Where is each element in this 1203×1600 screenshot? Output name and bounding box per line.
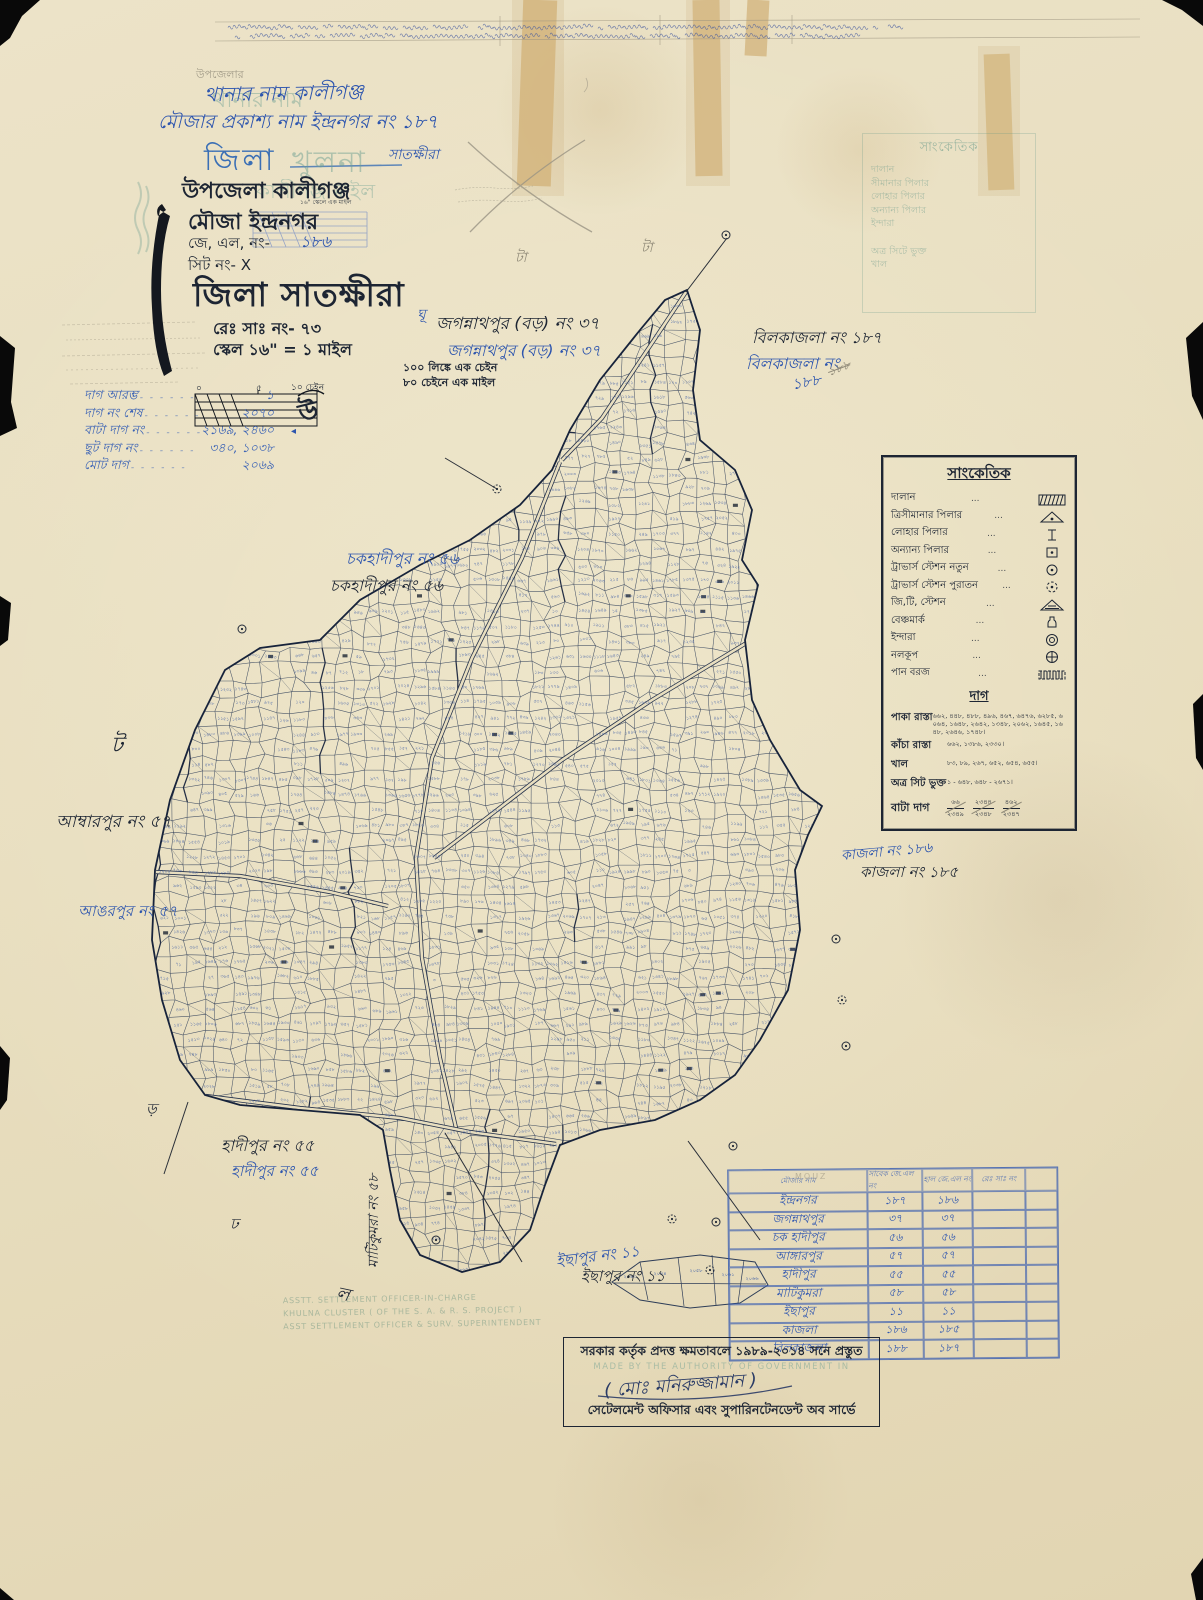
svg-text:১৩৬৯: ১৩৬৯ xyxy=(712,684,725,691)
svg-text:২০৬: ২০৬ xyxy=(775,868,785,874)
svg-text:৪৮৮: ৪৮৮ xyxy=(327,930,338,936)
svg-text:৩৪৫: ৩৪৫ xyxy=(625,699,635,705)
legend-item: দালান... xyxy=(891,490,1067,508)
svg-text:১১৭৮: ১১৭৮ xyxy=(502,562,515,568)
mouza-table-number-cell: ১১ xyxy=(923,1302,973,1321)
svg-text:৯৬৪: ৯৬৪ xyxy=(311,1100,321,1106)
map-annotation: চকহাদীপুর নং ৫৬ xyxy=(330,573,443,600)
scale-note-line2: ৮০ চেইনে এক মাইল xyxy=(403,375,497,390)
svg-text:১১৩০: ১১৩০ xyxy=(292,1038,305,1045)
svg-text:১৯০২: ১৯০২ xyxy=(456,1081,468,1087)
svg-text:১১৯৫: ১১৯৫ xyxy=(518,809,530,815)
map-annotation: চকহাদীপুর নং ৫৬ xyxy=(346,546,459,573)
svg-text:৯৯৮: ৯৯৮ xyxy=(700,764,711,770)
svg-text:১৩৬: ১৩৬ xyxy=(219,930,229,935)
svg-text:৫২৯: ৫২৯ xyxy=(235,794,244,799)
svg-text:৩৭৭: ৩৭৭ xyxy=(670,532,679,537)
svg-text:১৭৫৭: ১৭৫৭ xyxy=(701,516,713,522)
svg-text:৯৪১: ৯৪১ xyxy=(490,716,499,722)
svg-text:১৫৯৮: ১৫৯৮ xyxy=(636,595,649,601)
mouza-table-number-cell xyxy=(1026,1228,1058,1247)
svg-text:১৫: ১৫ xyxy=(612,609,619,615)
svg-text:১১২২: ১১২২ xyxy=(654,1053,666,1058)
svg-text:১৭৫৪: ১৭৫৪ xyxy=(290,793,302,799)
svg-text:১৯৯০: ১৯৯০ xyxy=(546,517,558,523)
svg-text:১৮৩: ১৮৩ xyxy=(534,670,545,676)
svg-text:১৩০০: ১৩০০ xyxy=(670,304,682,309)
svg-text:১৭৩৩: ১৭৩৩ xyxy=(713,975,726,980)
svg-text:১৯২৭: ১৯২৭ xyxy=(669,608,681,613)
svg-text:১৩০৪: ১৩০৪ xyxy=(443,700,455,706)
svg-text:১৭৬৪: ১৭৬৪ xyxy=(624,471,636,477)
svg-text:২১৫: ২১৫ xyxy=(610,578,619,583)
svg-text:১৩০৭: ১৩০৭ xyxy=(234,778,246,784)
svg-text:২২৩: ২২৩ xyxy=(310,807,320,813)
map-annotation: বিলকাজলা নং ১৮৭ xyxy=(752,325,882,352)
svg-text:১৭৫৩: ১৭৫৩ xyxy=(382,962,395,968)
svg-text:১৩৮৩: ১৩৮৩ xyxy=(355,961,368,967)
svg-text:২৫: ২৫ xyxy=(279,838,285,843)
svg-text:১৬২৯: ১৬২৯ xyxy=(610,1021,622,1027)
svg-text:১৬৮৭: ১৬৮৭ xyxy=(653,1102,665,1108)
legend-item: ইন্দারা... xyxy=(891,630,1067,648)
svg-text:৯২৮: ৯২৮ xyxy=(685,485,695,490)
svg-text:১৯৯২: ১৯৯২ xyxy=(428,609,440,615)
svg-text:৪৬৯: ৪৬৯ xyxy=(397,947,407,953)
svg-text:৯৮৪: ৯৮৪ xyxy=(671,1022,680,1027)
svg-text:১১০৭: ১১০৭ xyxy=(682,380,694,385)
svg-text:৫৩৩: ৫৩৩ xyxy=(578,565,589,571)
svg-text:১৪২৬: ১৪২৬ xyxy=(173,930,186,935)
svg-text:৯৩৫: ৯৩৫ xyxy=(490,945,500,951)
svg-text:৮৮২: ৮৮২ xyxy=(354,900,363,905)
svg-text:১৬২২: ১৬২২ xyxy=(264,900,276,905)
svg-text:১৫৯১: ১৫৯১ xyxy=(235,991,248,998)
svg-text:১০৩৭: ১০৩৭ xyxy=(428,1206,441,1213)
svg-text:১৯০৪: ১৯০৪ xyxy=(637,929,649,935)
svg-text:১১৪৭: ১১৪৭ xyxy=(263,716,275,722)
svg-text:১৩৩৮: ১৩৩৮ xyxy=(445,868,458,874)
svg-text:৭০৩: ৭০৩ xyxy=(264,883,275,890)
svg-text:১৬৪৯: ১৬৪৯ xyxy=(595,608,607,614)
svg-text:৮২০: ৮২০ xyxy=(607,837,617,843)
svg-text:১৫১৩: ১৫১৩ xyxy=(187,1037,201,1044)
mouza-table-header: রেঃ সাঃ নং xyxy=(972,1168,1025,1191)
svg-text:৩৯৪: ৩৯৪ xyxy=(475,854,484,860)
svg-text:১৪৮৭: ১৪৮৭ xyxy=(354,989,366,995)
svg-text:৮৫৩: ৮৫৩ xyxy=(473,1174,484,1180)
svg-text:৭০৬: ৭০৬ xyxy=(746,882,757,888)
svg-text:৩৯৮: ৩৯৮ xyxy=(472,793,483,799)
svg-text:১৭০১: ১৭০১ xyxy=(233,855,245,861)
mouza-table-number-cell xyxy=(973,1283,1026,1302)
svg-text:১৬৩৮: ১৬৩৮ xyxy=(622,488,635,493)
svg-text:১৬৭৪: ১৬৭৪ xyxy=(698,595,710,600)
svg-text:১১৫০: ১১৫০ xyxy=(608,532,620,538)
svg-text:১৭৮৫: ১৭৮৫ xyxy=(666,578,678,584)
svg-text:৭৬৯: ৭৬৯ xyxy=(491,1037,500,1042)
legend-symbol-double-circ-icon xyxy=(1035,629,1067,648)
svg-text:৭৮১: ৭৮১ xyxy=(446,638,455,644)
svg-text:৯৯১: ৯৯১ xyxy=(626,945,635,950)
svg-text:৯৭৮: ৯৭৮ xyxy=(537,532,547,538)
svg-text:৫১৯: ৫১৯ xyxy=(669,517,678,522)
svg-text:১৩৬১: ১৩৬১ xyxy=(549,715,562,722)
svg-text:১১৯৫: ১১৯৫ xyxy=(653,1085,665,1091)
svg-text:১৫০৮: ১৫০৮ xyxy=(279,947,292,953)
svg-text:৪৮১: ৪৮১ xyxy=(371,823,380,829)
svg-text:২৩৭: ২৩৭ xyxy=(520,609,529,614)
svg-text:৫৯৮: ৫৯৮ xyxy=(384,1100,394,1106)
svg-text:১১৬৫: ১১৬৫ xyxy=(262,1068,275,1075)
svg-text:১৯১১: ১৯১১ xyxy=(593,623,606,630)
svg-text:১৩৮৪: ১৩৮৪ xyxy=(488,885,500,891)
svg-text:৬৭২: ৬৭২ xyxy=(610,824,619,829)
svg-text:৪৩৭: ৪৩৭ xyxy=(596,992,605,998)
map-annotation: টা xyxy=(515,246,527,270)
svg-text:১৪০৪: ১৪০৪ xyxy=(428,808,440,814)
svg-text:৪৬০: ৪৬০ xyxy=(176,1008,185,1014)
svg-text:১০১৩: ১০১৩ xyxy=(564,1130,577,1136)
svg-text:৩৫৬: ৩৫৬ xyxy=(356,688,366,693)
svg-text:১১০৪: ১১০৪ xyxy=(445,808,457,814)
map-annotation: জগন্নাথপুর (বড়) নং ৩৭ xyxy=(436,311,600,339)
svg-text:১৫৩৫: ১৫৩৫ xyxy=(323,1099,335,1104)
svg-text:১৭০০: ১৭০০ xyxy=(654,854,666,860)
svg-text:১৬১৮: ১৬১৮ xyxy=(653,395,666,400)
bata-fraction: ২৩৪৪২৩৪৮ xyxy=(973,797,994,820)
svg-text:৭৪৪: ৭৪৪ xyxy=(637,1101,647,1107)
svg-text:৭৫৬: ৭৫৬ xyxy=(399,640,409,645)
svg-text:১৬৯০: ১৬৯০ xyxy=(308,1067,320,1073)
svg-text:৭৫৮: ৭৫৮ xyxy=(609,487,619,492)
svg-text:৪৯৩: ৪৯৩ xyxy=(563,516,573,522)
svg-text:৭১: ৭১ xyxy=(671,748,677,753)
svg-text:১৪১৩: ১৪১৩ xyxy=(486,609,500,616)
svg-text:১৭৪৪: ১৭৪৪ xyxy=(548,624,560,629)
svg-text:১০৯৭: ১০৯৭ xyxy=(309,1021,322,1028)
svg-text:১২০৪: ১২০৪ xyxy=(577,548,589,553)
svg-text:৮৯৭: ৮৯৭ xyxy=(686,548,695,553)
svg-text:৫৯: ৫৯ xyxy=(356,655,362,661)
svg-text:৮০১: ৮০১ xyxy=(357,930,367,936)
svg-text:২০২৬: ২০২৬ xyxy=(729,945,742,951)
svg-text:১৫৬৭: ১৫৬৭ xyxy=(653,547,665,552)
svg-text:১৯৬১: ১৯৬১ xyxy=(386,1010,398,1016)
svg-text:১৪৪: ১৪৪ xyxy=(520,1189,530,1195)
svg-text:২৫৭: ২৫৭ xyxy=(295,808,304,814)
svg-text:১২৮৮: ১২৮৮ xyxy=(685,700,698,706)
svg-text:১৭৫১: ১৭৫১ xyxy=(279,809,292,816)
legend-symbol-circ-dash-dot-icon xyxy=(1035,577,1067,596)
mouza-table-number-cell xyxy=(1026,1246,1058,1265)
svg-text:১০৬৯: ১০৬৯ xyxy=(532,947,544,953)
svg-text:১৫৪৩: ১৫৪৩ xyxy=(277,748,290,754)
svg-text:২০০১: ২০০১ xyxy=(367,1038,379,1044)
svg-text:১৭২৫: ১৭২৫ xyxy=(710,700,723,707)
svg-text:২৯৮: ২৯৮ xyxy=(491,639,502,645)
legend-item: নলকূপ... xyxy=(891,648,1067,666)
svg-text:২০৫২: ২০৫২ xyxy=(716,516,728,521)
svg-text:১৪৭৪: ১৪৭৪ xyxy=(338,792,350,798)
svg-text:১৭৫৩: ১৭৫৩ xyxy=(472,991,485,996)
svg-text:১১০: ১১০ xyxy=(596,868,605,874)
svg-text:১২৩৬: ১২৩৬ xyxy=(729,930,742,936)
mouza-table-number-cell: ৫৫ xyxy=(868,1266,923,1285)
svg-text:১৪৩৭: ১৪৩৭ xyxy=(549,1114,561,1120)
svg-text:১৭০৭: ১৭০৭ xyxy=(579,916,591,922)
svg-text:১৮৪৩: ১৮৪৩ xyxy=(668,473,681,479)
svg-text:২০১৮: ২০১৮ xyxy=(743,731,756,737)
svg-text:১৮৫৯: ১৮৫৯ xyxy=(248,1021,261,1028)
svg-text:১১৮০: ১১৮০ xyxy=(293,718,305,724)
svg-text:৩৫০: ৩৫০ xyxy=(461,885,470,890)
svg-text:৭৬৪: ৭৬৪ xyxy=(431,869,440,874)
svg-text:২০৪২: ২০৪২ xyxy=(473,1237,485,1242)
svg-text:৪১৯: ৪১৯ xyxy=(580,839,589,845)
svg-text:৩৮৪: ৩৮৪ xyxy=(459,1191,468,1197)
mouza-table-header: সাবেক জে.এল নং xyxy=(867,1169,922,1192)
svg-text:৯৭৫: ৯৭৫ xyxy=(264,701,274,707)
svg-text:১৪১৩: ১৪১৩ xyxy=(264,654,278,661)
svg-text:৩৬: ৩৬ xyxy=(266,822,273,827)
svg-text:২০৫৪: ২০৫৪ xyxy=(427,1131,439,1137)
svg-text:১৩৬৭: ১৩৬৭ xyxy=(548,913,560,919)
svg-text:২০৩১: ২০৩১ xyxy=(502,548,514,553)
svg-text:৬৮৯: ৬৮৯ xyxy=(373,1009,382,1014)
svg-text:১৭৩২: ১৭৩২ xyxy=(535,838,547,843)
svg-text:১৪৩১: ১৪৩১ xyxy=(608,640,620,646)
svg-text:১৮৩১: ১৮৩১ xyxy=(429,945,441,950)
legend-item: জি,টি, স্টেশন... xyxy=(891,595,1067,613)
svg-text:১৬৬২: ১৬৬২ xyxy=(625,548,637,553)
svg-text:২০২৬: ২০২৬ xyxy=(381,1052,395,1059)
svg-text:১৩৯: ১৩৯ xyxy=(444,932,453,937)
svg-text:৬৬৩: ৬৬৩ xyxy=(358,1006,369,1012)
svg-text:৪৩১: ৪৩১ xyxy=(460,991,470,997)
svg-text:১১৫৭: ১১৫৭ xyxy=(384,915,397,922)
svg-text:১৬১০: ১৬১০ xyxy=(533,1144,545,1150)
svg-text:৯৭৪: ৯৭৪ xyxy=(713,897,723,903)
svg-text:২১৭: ২১৭ xyxy=(549,1143,559,1149)
svg-text:৭২৩: ৭২৩ xyxy=(415,1006,425,1011)
svg-text:১১২৬: ১১২৬ xyxy=(473,870,486,876)
svg-text:১২৪: ১২৪ xyxy=(382,947,391,953)
svg-text:৯৭৬: ৯৭৬ xyxy=(654,1021,665,1027)
svg-text:১৫৯৩: ১৫৯৩ xyxy=(667,593,680,598)
dag-summary-row: বাটা দাগ নং- - - - - -২১৬৯, ২৪৬০ xyxy=(84,423,274,441)
svg-text:৭১: ৭১ xyxy=(175,962,182,968)
svg-text:৯৮৯: ৯৮৯ xyxy=(579,1022,588,1028)
svg-text:৩২৬: ৩২৬ xyxy=(473,976,484,982)
svg-text:৬১০: ৬১০ xyxy=(593,564,603,570)
svg-text:১১৯২: ১১৯২ xyxy=(399,913,411,919)
svg-text:১৯২৬: ১৯২৬ xyxy=(518,917,531,923)
svg-text:৪৩৩: ৪৩৩ xyxy=(640,716,650,721)
ghost-legend-item: দালান xyxy=(871,163,1027,177)
svg-text:২২১: ২২১ xyxy=(415,746,424,751)
svg-text:৬৬৭: ৬৬৭ xyxy=(517,579,526,584)
svg-text:১৩৮৫: ১৩৮৫ xyxy=(635,608,648,615)
svg-text:১৯২৭: ১৯২৭ xyxy=(683,992,695,997)
svg-text:৬০৫: ৬০৫ xyxy=(567,870,576,876)
svg-text:৪১৭: ৪১৭ xyxy=(595,945,604,950)
svg-text:৬৩৬: ৬৩৬ xyxy=(656,746,666,752)
svg-text:৮৬১: ৮৬১ xyxy=(731,838,740,843)
legend-symbol-pan-rect-icon xyxy=(1035,664,1067,683)
svg-text:১০০: ১০০ xyxy=(668,381,678,387)
svg-text:১৭৫৫: ১৭৫৫ xyxy=(639,808,651,814)
svg-text:৫৭৫: ৫৭৫ xyxy=(580,765,589,770)
svg-text:১০৩৫: ১০৩৫ xyxy=(429,1159,442,1166)
svg-text:৭২১: ৭২১ xyxy=(759,810,768,815)
svg-text:২০৬৩: ২০৬৩ xyxy=(592,578,606,585)
svg-text:৮৯৭: ৮৯৭ xyxy=(475,1223,485,1229)
svg-text:১৪১২: ১৪১২ xyxy=(488,732,501,739)
svg-text:১১২২: ১১২২ xyxy=(683,1038,695,1044)
svg-text:১১৫৯: ১১৫৯ xyxy=(519,520,531,525)
svg-text:১১৮৩: ১১৮৩ xyxy=(293,748,306,754)
mouza-table-header: হাল জে.এল নং xyxy=(922,1168,972,1191)
svg-text:১৮৭: ১৮৭ xyxy=(535,1021,544,1026)
svg-text:১৭৩৪: ১৭৩৪ xyxy=(668,854,681,861)
svg-text:১৮৬৭: ১৮৬৭ xyxy=(670,320,682,326)
svg-text:৫৩৮: ৫৩৮ xyxy=(597,929,607,935)
svg-text:১১১৮: ১১১৮ xyxy=(593,655,606,661)
svg-text:১৫৯১: ১৫৯১ xyxy=(502,576,514,582)
svg-text:৫৬৫: ৫৬৫ xyxy=(189,946,198,951)
svg-text:৭৪২: ৭৪২ xyxy=(687,411,696,416)
svg-text:২৫৭: ২৫৭ xyxy=(625,902,634,908)
faint-office-stamp: ASSTT. SETTLEMENT OFFICER-IN-CHARGEKHULN… xyxy=(283,1290,544,1334)
svg-text:৬১২: ৬১২ xyxy=(429,1097,438,1103)
svg-text:১৬৪৫: ১৬৪৫ xyxy=(397,960,410,967)
svg-text:১৭২৮: ১৭২৮ xyxy=(307,777,320,784)
svg-text:১৩৭৫: ১৩৭৫ xyxy=(683,577,695,583)
svg-text:৬৫৪: ৬৫৪ xyxy=(203,947,212,953)
svg-text:১০৫১: ১০৫১ xyxy=(445,1038,457,1043)
svg-text:২৯১: ২৯১ xyxy=(565,1023,575,1029)
svg-text:৮২১: ৮২১ xyxy=(357,915,367,921)
svg-text:১০৫৮: ১০৫৮ xyxy=(595,852,609,859)
svg-text:৩০০: ৩০০ xyxy=(474,732,483,738)
svg-text:২৬৩: ২৬৩ xyxy=(445,793,456,799)
svg-text:৩২৪: ৩২৪ xyxy=(717,564,726,569)
svg-text:১৮৪৭: ১৮৪৭ xyxy=(262,777,274,782)
svg-text:১৬৫৬: ১৬৫৬ xyxy=(398,793,411,800)
svg-text:২৫০: ২৫০ xyxy=(460,854,469,859)
svg-text:৪৬৯: ৪৬৯ xyxy=(641,334,650,339)
svg-text:১১৩৬: ১১৩৬ xyxy=(727,596,740,601)
svg-text:৭৫: ৭৫ xyxy=(672,869,678,875)
svg-text:১৭৬: ১৭৬ xyxy=(219,959,229,965)
svg-text:১৪৫৭: ১৪৫৭ xyxy=(250,898,263,905)
map-annotation: হাদীপুর নং ৫৫ xyxy=(231,1160,318,1185)
svg-text:৮৩৭: ৮৩৭ xyxy=(233,927,242,933)
map-annotation: আম্বারপুর নং ৫৭ xyxy=(56,809,171,837)
svg-text:১৮৭০: ১৮৭০ xyxy=(684,915,696,921)
svg-text:৭০৯: ৭০৯ xyxy=(701,486,710,492)
svg-text:১৯৫০: ১৯৫০ xyxy=(518,1129,530,1135)
mouza-table-number-cell xyxy=(1026,1265,1058,1284)
svg-text:১১২৮: ১১২৮ xyxy=(667,562,680,568)
svg-text:৩১৬: ৩১৬ xyxy=(399,1038,409,1043)
ghost-legend-item: সীমানার পিলার xyxy=(871,177,1027,191)
svg-text:১৩৪৮: ১৩৪৮ xyxy=(249,993,262,998)
svg-text:১৮৪৩: ১৮৪৩ xyxy=(489,1051,503,1058)
map-annotation: জগন্নাথপুর (বড়) নং ৩৭ xyxy=(447,338,601,365)
svg-text:১৪৪০: ১৪৪০ xyxy=(369,930,382,937)
svg-text:১৭১২: ১৭১২ xyxy=(698,792,710,797)
dag-summary-row: দাগ নং শেষ- - - - - -২০৭০ xyxy=(84,406,274,424)
svg-text:১৪৩৮: ১৪৩৮ xyxy=(264,929,277,935)
svg-text:১২২০: ১২২০ xyxy=(756,914,768,920)
svg-text:১৩৫৩: ১৩৫৩ xyxy=(656,870,669,876)
bata-fraction: ৬৬২৩৪৯ xyxy=(947,797,964,820)
svg-text:২০৪৭: ২০৪৭ xyxy=(592,883,605,890)
svg-text:৪০: ৪০ xyxy=(461,685,467,690)
header-district-handwritten: সাতক্ষীরা xyxy=(388,143,439,167)
svg-text:২০৮: ২০৮ xyxy=(686,686,696,691)
svg-text:১৬৫৬: ১৬৫৬ xyxy=(788,792,802,799)
svg-text:৮৪৯: ৮৪৯ xyxy=(642,458,652,464)
map-annotation: ইছাপুর নং ১১ xyxy=(581,1265,665,1290)
svg-text:৮৭৫: ৮৭৫ xyxy=(685,947,695,953)
svg-text:৯৩৪: ৯৩৪ xyxy=(414,1222,424,1228)
svg-text:৯৮০: ৯৮০ xyxy=(385,823,394,829)
svg-text:১০২৪: ১০২৪ xyxy=(203,1036,216,1043)
mouza-table-number-cell: ১১ xyxy=(868,1303,923,1322)
svg-text:১১৪৩: ১১৪৩ xyxy=(443,686,456,692)
svg-text:১৫৫০: ১৫৫০ xyxy=(729,670,741,676)
svg-text:৬৭: ৬৭ xyxy=(508,1115,514,1120)
svg-text:১১৫: ১১৫ xyxy=(400,610,410,616)
svg-text:৩৬৫: ৩৬৫ xyxy=(220,975,229,980)
svg-text:১৯৫৭: ১৯৫৭ xyxy=(610,716,622,722)
svg-text:১৪০৩: ১৪০৩ xyxy=(596,732,609,737)
svg-text:৫০৯: ৫০৯ xyxy=(325,778,334,783)
svg-text:১২৬৯: ১২৬৯ xyxy=(578,499,591,506)
svg-text:৭৭৪: ৭৭৪ xyxy=(596,793,606,799)
svg-text:৩৪: ৩৪ xyxy=(236,884,243,890)
svg-text:৪৯৫: ৪৯৫ xyxy=(397,837,407,843)
svg-text:১৬৭৫: ১৬৭৫ xyxy=(697,1040,710,1047)
svg-text:৬৫৫: ৬৫৫ xyxy=(459,1117,468,1122)
svg-text:৭২৭: ৭২৭ xyxy=(613,809,622,814)
mouza-table-number-cell xyxy=(1025,1191,1057,1210)
svg-text:১০৩১: ১০৩১ xyxy=(579,637,592,644)
ghost-legend-item: অত্র সিটে ভুক্ত xyxy=(871,245,1027,259)
svg-text:১০১৯: ১০১৯ xyxy=(218,840,231,847)
svg-text:১০১৭: ১০১৭ xyxy=(713,1052,725,1057)
svg-text:১৫৫৬: ১৫৫৬ xyxy=(474,1115,487,1122)
svg-text:১০২: ১০২ xyxy=(504,1191,513,1197)
svg-text:১৩১৬: ১৩১৬ xyxy=(219,824,232,830)
svg-text:২০২৪: ২০২৪ xyxy=(397,684,409,689)
svg-text:৩০৭: ৩০৭ xyxy=(462,869,471,874)
svg-text:১৮৯৬: ১৮৯৬ xyxy=(489,837,502,844)
svg-text:৪০৫: ৪০৫ xyxy=(218,792,228,798)
svg-text:৪৯০: ৪৯০ xyxy=(713,716,722,721)
svg-text:১৬১৪: ১৬১৪ xyxy=(414,1190,426,1196)
svg-text:১১৩৮: ১১৩৮ xyxy=(653,474,666,480)
svg-text:১৭৫৩: ১৭৫৩ xyxy=(534,870,547,876)
legend-item: ট্রাভার্স স্টেশন নতুন... xyxy=(891,560,1067,578)
mouza-table-number-cell: ৫৬ xyxy=(868,1229,923,1248)
svg-text:১৯৭৫: ১৯৭৫ xyxy=(729,549,741,555)
svg-text:১৫৪০: ১৫৪০ xyxy=(758,854,770,860)
svg-text:৯৬৪: ৯৬৪ xyxy=(338,886,347,892)
